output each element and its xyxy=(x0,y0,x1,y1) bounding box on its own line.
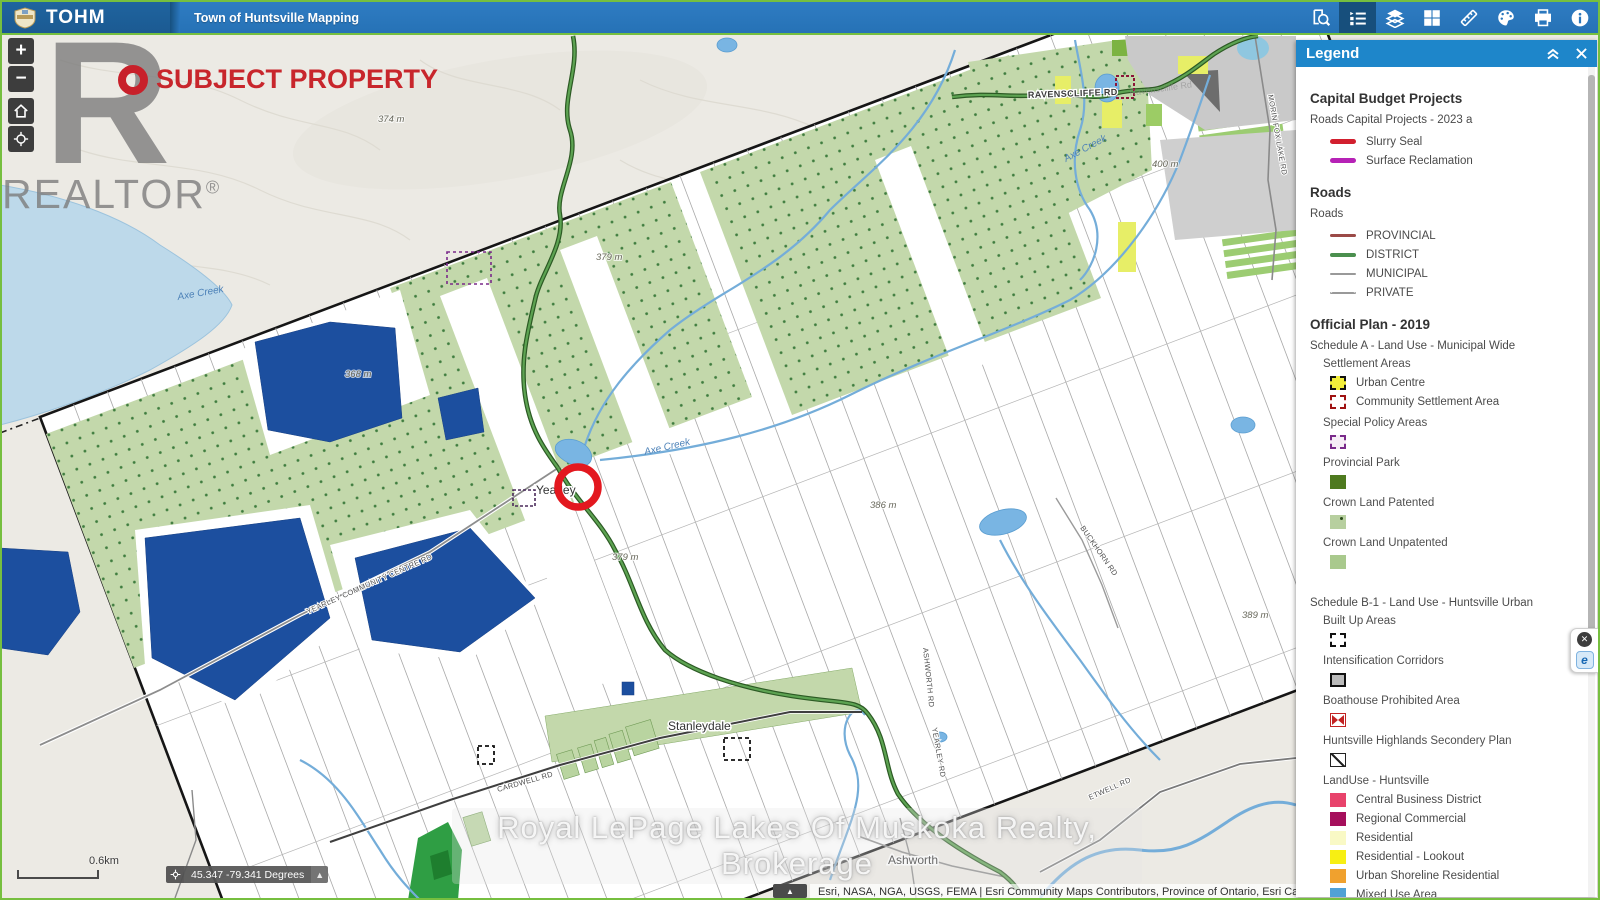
map-label: Ashworth xyxy=(888,853,938,867)
legend-item: PRIVATE xyxy=(1310,283,1597,302)
legend-line-swatch xyxy=(1330,139,1356,144)
app-abbreviation: TOHM xyxy=(46,7,106,29)
legend-group-label: Intensification Corridors xyxy=(1310,655,1597,667)
map-label: 379 m xyxy=(596,252,622,263)
legend-layer-name: Roads xyxy=(1310,208,1597,220)
legend-item xyxy=(1310,710,1597,729)
draw-tool-button[interactable] xyxy=(1487,2,1524,33)
legend-line-swatch xyxy=(1330,253,1356,257)
legend-item xyxy=(1310,512,1597,531)
legend-group-label: Provincial Park xyxy=(1310,457,1597,469)
map-label: 389 m xyxy=(1242,610,1268,621)
legend-item-label: PRIVATE xyxy=(1366,287,1414,299)
legend-area-swatch xyxy=(1330,376,1346,390)
subject-property-flag: SUBJECT PROPERTY xyxy=(118,64,438,95)
map-label: 374 m xyxy=(378,114,404,125)
header-brand: TOHM xyxy=(2,2,170,33)
legend-item xyxy=(1310,432,1597,451)
legend-area-swatch xyxy=(1330,869,1346,883)
legend-item-label: Slurry Seal xyxy=(1366,136,1422,148)
legend-area-swatch xyxy=(1330,475,1346,489)
legend-area-swatch xyxy=(1330,888,1346,898)
legend-item: PROVINCIAL xyxy=(1310,226,1597,245)
town-crest-logo xyxy=(12,6,38,30)
subject-donut-icon xyxy=(118,65,148,95)
map-label: 379 m xyxy=(612,552,638,563)
legend-item-label: Regional Commercial xyxy=(1356,813,1466,825)
crosshair-icon[interactable] xyxy=(166,866,184,883)
layers-icon xyxy=(1385,8,1405,28)
legend-item: Residential xyxy=(1310,828,1597,847)
zoom-in-button[interactable]: + xyxy=(8,38,34,64)
edge-widget: ✕ e xyxy=(1570,628,1598,673)
scalebar-label: 0.6km xyxy=(89,855,119,867)
legend-item: Urban Shoreline Residential xyxy=(1310,866,1597,885)
legend-layer-name: Roads Capital Projects - 2023 a xyxy=(1310,114,1597,126)
layers-tool-button[interactable] xyxy=(1376,2,1413,33)
legend-item: Slurry Seal xyxy=(1310,132,1597,151)
legend-area-swatch xyxy=(1330,515,1346,529)
legend-layer-name: Schedule A - Land Use - Municipal Wide xyxy=(1310,340,1597,352)
legend-group-label: LandUse - Huntsville xyxy=(1310,775,1597,787)
legend-area-swatch xyxy=(1330,673,1346,687)
subject-property-label: SUBJECT PROPERTY xyxy=(156,64,438,95)
coordinates-expand-chevron[interactable]: ▲ xyxy=(311,866,328,883)
legend-area-swatch xyxy=(1330,753,1346,767)
header-toolbar xyxy=(1302,2,1598,33)
legend-item xyxy=(1310,670,1597,689)
legend-group-label: Boathouse Prohibited Area xyxy=(1310,695,1597,707)
legend-item: Regional Commercial xyxy=(1310,809,1597,828)
legend-group-label: Huntsville Highlands Secondery Plan xyxy=(1310,735,1597,747)
chevron-double-up-icon xyxy=(1546,47,1560,61)
legend-panel: Legend Capital Budget ProjectsRoads Capi… xyxy=(1296,40,1597,897)
legend-line-swatch xyxy=(1330,234,1356,237)
zoom-out-button[interactable]: − xyxy=(8,66,34,92)
legend-area-swatch xyxy=(1330,812,1346,826)
map-label: 386 m xyxy=(870,500,896,511)
legend-section-heading: Roads xyxy=(1310,185,1597,200)
legend-area-swatch xyxy=(1330,555,1346,569)
legend-area-swatch xyxy=(1330,395,1346,409)
search-tool-button[interactable] xyxy=(1302,2,1339,33)
draw-icon xyxy=(1496,8,1516,28)
legend-header: Legend xyxy=(1296,40,1597,67)
basemap-tool-button[interactable] xyxy=(1413,2,1450,33)
legend-item: Central Business District xyxy=(1310,790,1597,809)
legend-area-swatch xyxy=(1330,793,1346,807)
attribution-text: Esri, NASA, NGA, USGS, FEMA | Esri Commu… xyxy=(810,884,1298,899)
legend-item: Surface Reclamation xyxy=(1310,151,1597,170)
legend-item xyxy=(1310,750,1597,769)
app-title: Town of Huntsville Mapping xyxy=(194,11,359,25)
legend-line-swatch xyxy=(1330,292,1356,294)
legend-area-swatch xyxy=(1330,633,1346,647)
locate-button[interactable] xyxy=(8,126,34,152)
print-tool-button[interactable] xyxy=(1524,2,1561,33)
legend-group-label: Special Policy Areas xyxy=(1310,417,1597,429)
map-label: 368 m xyxy=(345,369,371,380)
legend-title: Legend xyxy=(1306,45,1359,62)
legend-line-swatch xyxy=(1330,273,1356,275)
legend-group-label: Settlement Areas xyxy=(1310,358,1597,370)
header-divider xyxy=(170,2,180,33)
legend-area-swatch xyxy=(1330,850,1346,864)
locate-icon xyxy=(13,131,29,147)
app-header: TOHM Town of Huntsville Mapping xyxy=(2,2,1598,33)
map-label: 400 m xyxy=(1152,159,1178,170)
info-tool-button[interactable] xyxy=(1561,2,1598,33)
legend-section-heading: Capital Budget Projects xyxy=(1310,91,1597,106)
legend-item-label: Urban Centre xyxy=(1356,377,1425,389)
legend-item-label: Residential xyxy=(1356,832,1413,844)
legend-item: MUNICIPAL xyxy=(1310,264,1597,283)
measure-icon xyxy=(1459,8,1479,28)
legend-group-label: Built Up Areas xyxy=(1310,615,1597,627)
legend-line-swatch xyxy=(1330,158,1356,163)
map-controls: + − xyxy=(8,38,34,152)
legend-tool-button[interactable] xyxy=(1339,2,1376,33)
legend-item: Mixed Use Area xyxy=(1310,885,1597,897)
close-icon xyxy=(1576,48,1587,59)
legend-item-label: PROVINCIAL xyxy=(1366,230,1436,242)
home-button[interactable] xyxy=(8,98,34,124)
basemap-icon xyxy=(1422,8,1442,28)
coordinates-widget[interactable]: 45.347 -79.341 Degrees ▲ xyxy=(166,866,328,883)
scalebar-bar xyxy=(17,870,99,879)
legend-group-label: Crown Land Unpatented xyxy=(1310,537,1597,549)
measure-tool-button[interactable] xyxy=(1450,2,1487,33)
legend-item-label: Residential - Lookout xyxy=(1356,851,1464,863)
search-icon xyxy=(1311,8,1331,28)
legend-item-label: MUNICIPAL xyxy=(1366,268,1428,280)
print-icon xyxy=(1533,8,1553,28)
legend-close-button[interactable] xyxy=(1576,48,1587,59)
legend-area-swatch xyxy=(1330,435,1346,449)
legend-scrollbar-thumb[interactable] xyxy=(1588,75,1595,633)
coordinates-value: 45.347 -79.341 Degrees xyxy=(184,866,311,883)
home-icon xyxy=(13,103,29,119)
info-icon xyxy=(1570,8,1590,28)
legend-item: Residential - Lookout xyxy=(1310,847,1597,866)
close-icon[interactable]: ✕ xyxy=(1577,632,1592,647)
attribution-toggle-button[interactable]: ▲ xyxy=(773,884,807,898)
legend-item-label: DISTRICT xyxy=(1366,249,1419,261)
legend-scrollbar[interactable] xyxy=(1588,67,1595,897)
legend-item-label: Surface Reclamation xyxy=(1366,155,1473,167)
legend-group-label: Crown Land Patented xyxy=(1310,497,1597,509)
legend-area-swatch xyxy=(1330,831,1346,845)
legend-item: DISTRICT xyxy=(1310,245,1597,264)
e-badge-icon[interactable]: e xyxy=(1576,651,1594,669)
legend-item-label: Urban Shoreline Residential xyxy=(1356,870,1499,882)
legend-item-label: Central Business District xyxy=(1356,794,1481,806)
legend-layer-name: Schedule B-1 - Land Use - Huntsville Urb… xyxy=(1310,597,1597,609)
legend-item: Urban Centre xyxy=(1310,373,1597,392)
legend-area-swatch xyxy=(1330,713,1346,727)
legend-item-label: Mixed Use Area xyxy=(1356,889,1437,898)
legend-item xyxy=(1310,472,1597,491)
legend-item: Community Settlement Area xyxy=(1310,392,1597,411)
legend-body: Capital Budget ProjectsRoads Capital Pro… xyxy=(1296,67,1597,897)
legend-item xyxy=(1310,552,1597,571)
legend-icon xyxy=(1348,8,1368,28)
legend-item-label: Community Settlement Area xyxy=(1356,396,1499,408)
map-label: Stanleydale xyxy=(668,719,731,733)
legend-item xyxy=(1310,630,1597,649)
legend-section-heading: Official Plan - 2019 xyxy=(1310,317,1597,332)
legend-collapse-button[interactable] xyxy=(1546,47,1560,61)
